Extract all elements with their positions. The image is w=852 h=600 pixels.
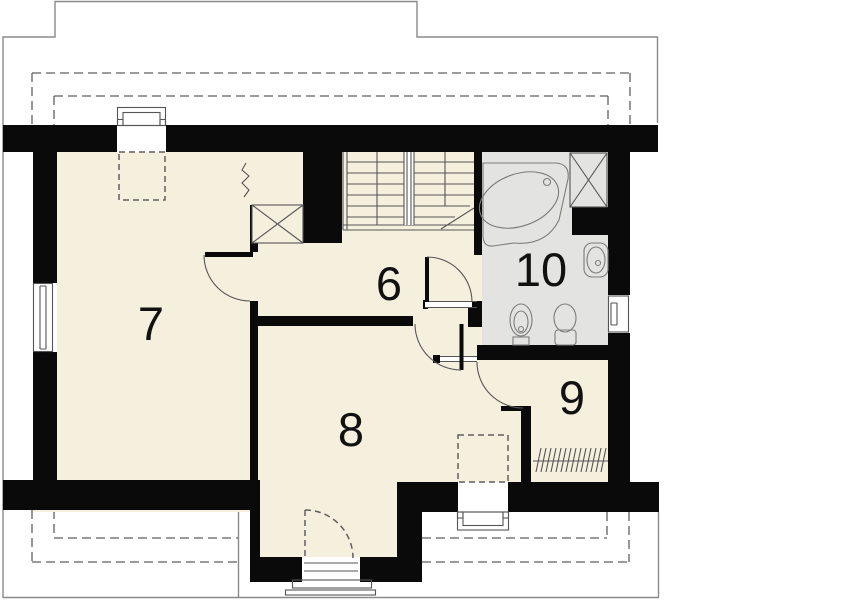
wall-hall-bottom bbox=[258, 316, 413, 326]
room-6-label: 6 bbox=[376, 257, 402, 310]
floor-plan-drawing: 6 7 8 9 10 bbox=[0, 0, 852, 600]
wall-hall-right bbox=[474, 152, 482, 255]
wall-bottom-right-a bbox=[422, 482, 458, 512]
wall-room8-bottom-b bbox=[360, 557, 422, 582]
wall-bottom-left bbox=[3, 480, 250, 510]
wall-left-lower bbox=[33, 352, 57, 480]
chimney-flue bbox=[252, 205, 303, 243]
room-7-label: 7 bbox=[138, 297, 164, 350]
wall-room7-hall-lower bbox=[250, 301, 258, 480]
floor-plan-page: 6 7 8 9 10 bbox=[0, 0, 852, 600]
wall-stair-side bbox=[303, 152, 342, 243]
room-10-label: 10 bbox=[515, 243, 567, 296]
wall-left-upper bbox=[33, 152, 57, 283]
room-9-label: 9 bbox=[559, 371, 585, 424]
wall-top bbox=[3, 125, 658, 152]
wall-right-lower bbox=[608, 333, 630, 482]
window-right-bathroom bbox=[608, 295, 630, 333]
wall-room8-bottom-a bbox=[258, 557, 302, 582]
wall-bath-duct-block bbox=[572, 207, 608, 235]
wall-room8-room9 bbox=[521, 406, 531, 482]
window-left bbox=[33, 283, 57, 352]
wall-bath-bottom bbox=[477, 345, 630, 360]
wall-right-upper bbox=[608, 152, 630, 295]
room-8-label: 8 bbox=[338, 403, 364, 456]
wall-bottom-right-b bbox=[508, 482, 659, 512]
